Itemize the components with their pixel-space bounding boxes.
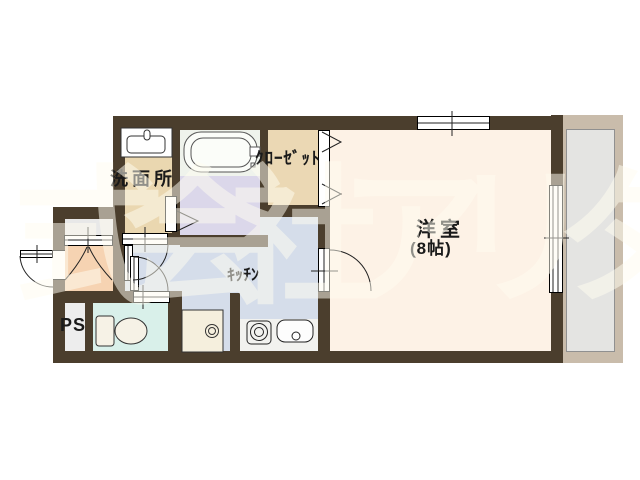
wall-ps-toilet: [85, 303, 93, 351]
wall-counter-pillar: [230, 293, 240, 351]
room-bathroom: [180, 176, 260, 235]
label-closet: ｸﾛｰｾﾞｯﾄ: [255, 150, 321, 167]
balcony-floor: [566, 129, 615, 352]
wall-washer-left: [168, 291, 182, 351]
window-balcony-sliding: [549, 185, 563, 293]
door-living-leaf: [318, 248, 330, 292]
label-living-size: (8帖): [410, 240, 452, 257]
bathtub-zone: [180, 130, 260, 176]
label-kitchen: ｷｯﾁﾝ: [227, 268, 259, 284]
doorway-washroom: [122, 233, 168, 245]
wall-kitchen-living-lower: [318, 292, 330, 351]
door-entrance-leaf: [20, 250, 53, 258]
kitchen-counter: [240, 319, 318, 351]
doorway-entrance-wall-gap: [53, 250, 65, 280]
door-swing-entrance-exterior: [20, 256, 53, 287]
wall-kitchen-living-upper: [318, 217, 330, 248]
room-kitchen-upper-strip: [260, 217, 318, 245]
doorway-toilet: [133, 291, 170, 303]
wall-bath-south: [180, 235, 268, 247]
door-toilet-leaf: [130, 256, 139, 291]
entrance-alcove: [65, 219, 113, 235]
room-toilet: [93, 303, 168, 351]
wall-bottom: [53, 351, 563, 363]
door-closet-bifold: [318, 130, 330, 207]
door-bathroom-fold: [165, 196, 177, 232]
label-living-room: 洋室: [416, 220, 464, 240]
label-pipe-space: PS: [60, 316, 86, 334]
floorplan-canvas: 洋室 (8帖) ｷｯﾁﾝ 洗面所 ｸﾛｰｾﾞｯﾄ PS 式会社アリタヤ: [0, 0, 640, 480]
label-washroom: 洗面所: [110, 170, 176, 188]
window-living-north: [417, 116, 490, 130]
doorway-entrance-inner: [64, 235, 113, 246]
wall-top: [113, 116, 563, 130]
wall-bath-closet: [260, 130, 268, 217]
